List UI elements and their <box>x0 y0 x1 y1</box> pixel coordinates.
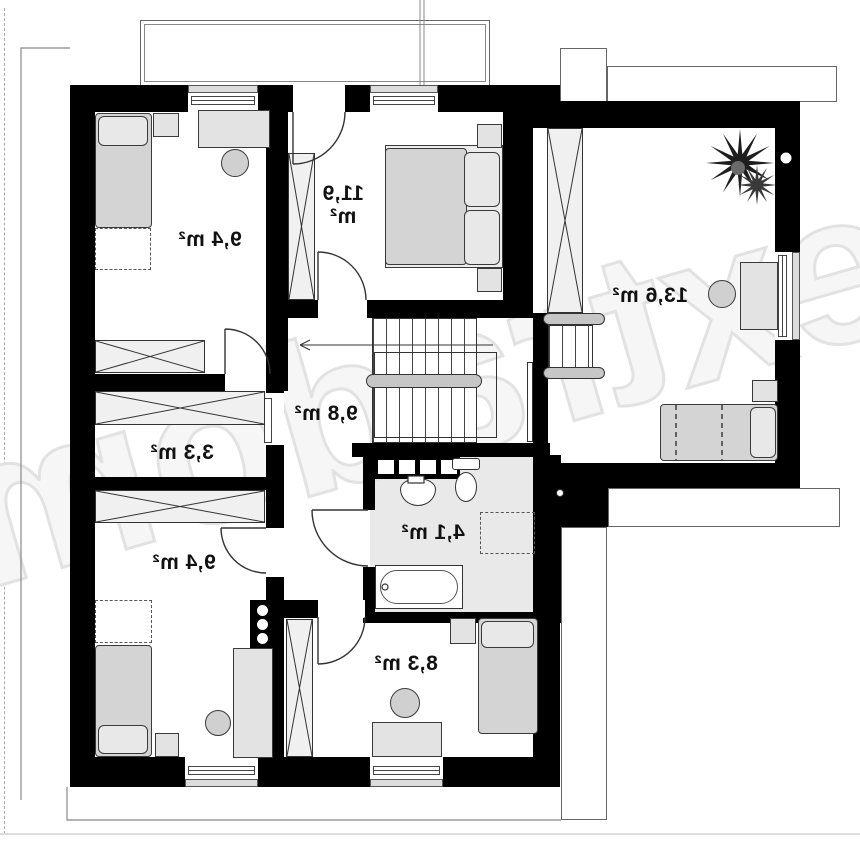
wall-bottom <box>70 757 560 787</box>
bathroom-door-arc <box>312 510 368 566</box>
stool-bottom-middle <box>390 688 420 718</box>
toilet-cistern <box>452 458 480 470</box>
wall-under-top-left-bedroom <box>95 374 225 391</box>
plant-icon <box>706 129 777 205</box>
bed-bottom-left-pillow <box>98 725 148 754</box>
wall-left <box>70 85 95 787</box>
nightstand-bottom-left <box>155 733 179 757</box>
bedroom-top-left-door-arc <box>225 329 270 374</box>
stool-bottom-left <box>205 710 231 736</box>
staircase-handrail <box>366 374 482 388</box>
chimney-top-outline <box>560 48 607 102</box>
area-label-bedroom-top-middle: 11,9 m² <box>316 182 370 228</box>
wardrobe-closet-top <box>95 391 265 425</box>
wardrobe-bottom-left-room <box>95 490 265 523</box>
stool-top-left <box>221 149 249 177</box>
wall-above-stairs-right <box>367 300 533 318</box>
wall-stairwell-right <box>533 313 548 463</box>
window-top-left <box>188 85 258 112</box>
bottom-left-bedroom-door-opening <box>266 528 284 577</box>
washer-space-dashed <box>480 512 535 554</box>
wardrobe-top-middle <box>288 153 315 300</box>
bed-top-left-extension-dashed <box>95 228 151 270</box>
nightstand-middle-bottom <box>477 268 502 292</box>
balcony-outline <box>140 20 490 86</box>
wall-bathroom-left-upper <box>363 455 375 510</box>
nightstand-top-right <box>752 380 778 402</box>
roof-line-bottom-left <box>67 787 561 820</box>
plant-pot <box>731 161 745 175</box>
window-bottom-left <box>185 757 258 787</box>
roof-strip-bottom-right <box>561 527 607 820</box>
roof-band-top-right <box>607 66 837 102</box>
staircase-upper-flight <box>548 325 593 368</box>
area-label-closet: 3,3 m² <box>134 441 230 464</box>
wardrobe-top-right <box>547 128 583 313</box>
bathroom-radiator <box>375 455 460 479</box>
double-bed-pillow-2 <box>464 210 500 265</box>
wall-room-right-bottom <box>533 463 800 490</box>
double-bed-pillow-1 <box>464 152 500 207</box>
chimney-flue <box>250 600 276 648</box>
desk-bottom-middle <box>372 722 442 757</box>
staircase-upper-handrail-bottom <box>543 367 605 379</box>
staircase-upper-handrail-top <box>543 313 605 325</box>
closet-door-leaf <box>264 398 272 443</box>
bed-bottom-left-extension-dashed <box>95 600 152 643</box>
window-bottom-middle <box>370 757 443 787</box>
bottom-middle-bedroom-door-opening <box>318 600 365 618</box>
bedroom-top-middle-door-arc <box>318 252 366 300</box>
area-label-hallway: 9,8 m² <box>278 402 374 425</box>
bed-bottom-middle-pillow <box>481 621 534 648</box>
desk-top-left <box>198 110 270 148</box>
wardrobe-top-left <box>95 340 205 373</box>
area-label-bedroom-bottom-middle: 8,3 m² <box>358 652 454 675</box>
nightstand-top-left <box>153 113 179 137</box>
bathtub <box>375 565 463 609</box>
area-label-bathroom: 4,1 m² <box>385 521 481 544</box>
wall-bedroom-middle-right <box>503 112 533 300</box>
stairwell-railing <box>527 362 533 442</box>
wall-above-stairs-left <box>266 300 318 318</box>
area-label-bedroom-bottom-left: 9,4 m² <box>136 551 232 574</box>
side-table-bottom-middle <box>450 618 476 644</box>
floor-plan: extradom <box>0 0 860 842</box>
cabinet-bottom-left <box>233 648 273 758</box>
wall-top-right <box>533 101 800 128</box>
wall-corner-bottom-right <box>533 490 608 527</box>
area-label-room-top-right: 13,6 m² <box>600 284 700 307</box>
bed-top-left-pillow <box>98 116 148 146</box>
bathtub-inner <box>380 570 458 604</box>
roof-line-left <box>21 48 70 800</box>
window-right <box>775 252 800 340</box>
balcony-inner-line <box>144 24 486 82</box>
window-top-middle <box>370 85 438 112</box>
toilet-bowl <box>455 472 477 502</box>
roof-band-bottom-right <box>608 488 840 527</box>
staircase-void-outline <box>374 352 497 438</box>
stool-top-right <box>708 280 736 308</box>
desk-top-right <box>740 262 778 330</box>
balcony-door-opening <box>293 85 345 112</box>
bed-top-right-pillow <box>750 407 776 458</box>
page-edge-dashed-line <box>4 8 5 834</box>
wardrobe-bottom-middle <box>286 619 313 757</box>
area-label-bedroom-top-left: 9,4 m² <box>160 228 260 251</box>
wall-closet-bottom <box>95 477 266 490</box>
double-bed-blanket <box>385 148 467 265</box>
nightstand-middle-top <box>477 124 502 148</box>
